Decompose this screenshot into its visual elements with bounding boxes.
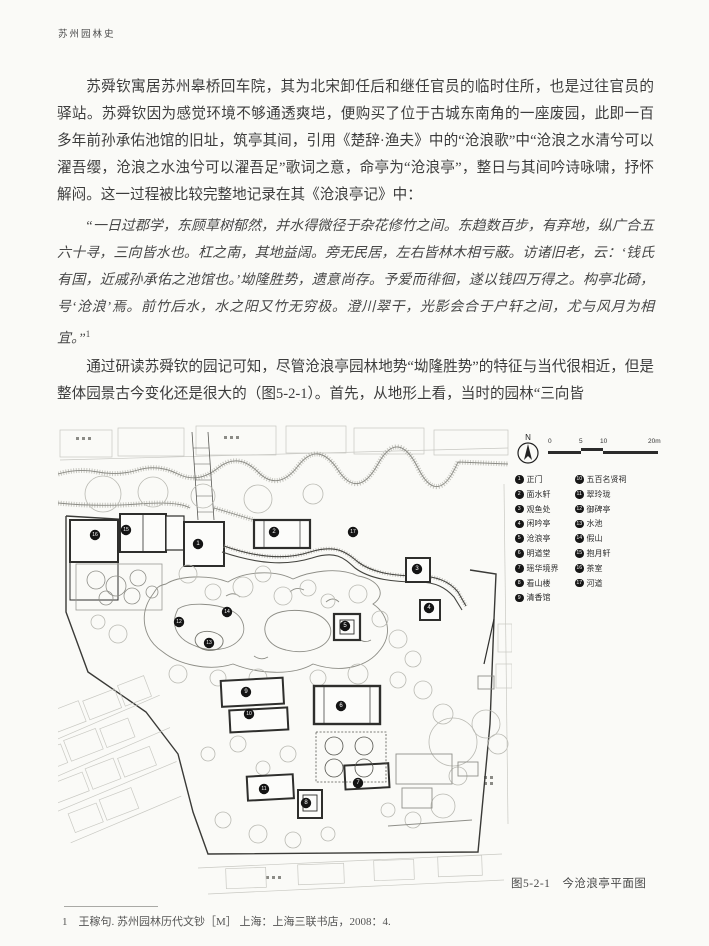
legend-column-2: 10五百名贤祠11翠玲珑12御碑亭13水池14假山15抱月轩16茶室17河道 bbox=[575, 474, 667, 607]
legend-item-label: 茶室 bbox=[587, 563, 603, 574]
legend-item-number: 6 bbox=[515, 549, 524, 558]
svg-text:17: 17 bbox=[350, 529, 356, 535]
legend-item-number: 5 bbox=[515, 534, 524, 543]
legend-item-number: 1 bbox=[515, 475, 524, 484]
map-marker: 12 bbox=[174, 617, 184, 627]
legend-item: 5沧浪亭 bbox=[515, 533, 575, 544]
legend-item: 11翠玲珑 bbox=[575, 489, 667, 500]
svg-text:13: 13 bbox=[206, 640, 212, 646]
legend-item-label: 清香馆 bbox=[527, 592, 551, 603]
footnote-reference: 1 bbox=[86, 329, 91, 339]
svg-text:16: 16 bbox=[92, 532, 98, 538]
map-marker: 9 bbox=[241, 687, 251, 697]
quote-paragraph: “一日过郡学，东顾草树郁然，并水得微径于杂花修竹之间。东趋数百步，有弃地，纵广合… bbox=[57, 213, 654, 353]
map-marker: 15 bbox=[121, 525, 131, 535]
legend-item-number: 17 bbox=[575, 579, 584, 588]
legend-item-number: 10 bbox=[575, 475, 584, 484]
map-marker: 10 bbox=[244, 709, 254, 719]
svg-text:14: 14 bbox=[224, 609, 230, 615]
legend-item: 14假山 bbox=[575, 533, 667, 544]
legend-item: 13水池 bbox=[575, 518, 667, 529]
scale-tick-10: 10 bbox=[600, 438, 607, 445]
legend-item: 2面水轩 bbox=[515, 489, 575, 500]
legend-item: 7瑶华境界 bbox=[515, 563, 575, 574]
legend-item: 15抱月轩 bbox=[575, 548, 667, 559]
scale-bar-track bbox=[548, 447, 662, 455]
legend-item-number: 14 bbox=[575, 534, 584, 543]
legend-item-label: 正门 bbox=[527, 474, 543, 485]
legend-item: 12御碑亭 bbox=[575, 504, 667, 515]
map-legend: N 0 5 10 20m 1正门2面水轩3观鱼处4闲吟亭5沧浪亭6明道堂7瑶华境… bbox=[515, 432, 667, 607]
compass-north-label: N bbox=[525, 433, 531, 442]
legend-item-number: 16 bbox=[575, 564, 584, 573]
svg-text:15: 15 bbox=[123, 527, 129, 533]
legend-item-label: 瑶华境界 bbox=[527, 563, 559, 574]
map-structures-southeast bbox=[388, 676, 494, 826]
map-marker: 8 bbox=[301, 798, 311, 808]
paragraph-1: 苏舜钦寓居苏州皋桥回车院，其为北宋卸任后和继任官员的临时住所，也是过往官员的驿站… bbox=[57, 74, 654, 209]
legend-header: N 0 5 10 20m bbox=[515, 432, 667, 470]
legend-item-label: 假山 bbox=[587, 533, 603, 544]
legend-item-number: 9 bbox=[515, 594, 524, 603]
map-marker: 11 bbox=[259, 784, 269, 794]
legend-item: 17河道 bbox=[575, 578, 667, 589]
legend-item-number: 4 bbox=[515, 520, 524, 529]
map-marker: 17 bbox=[348, 527, 358, 537]
figure-caption: 图5-2-1 今沧浪亭平面图 bbox=[511, 875, 646, 891]
scale-tick-20: 20m bbox=[648, 438, 661, 445]
map-buildings-northwest bbox=[70, 514, 224, 600]
legend-item-label: 河道 bbox=[587, 578, 603, 589]
legend-item: 16茶室 bbox=[575, 563, 667, 574]
legend-item-number: 13 bbox=[575, 520, 584, 529]
svg-text:10: 10 bbox=[246, 711, 252, 717]
map-marker: 2 bbox=[269, 527, 279, 537]
legend-item-number: 3 bbox=[515, 505, 524, 514]
scale-ticks: 0 5 10 20m bbox=[548, 438, 662, 447]
map-street-blocks-bottom bbox=[198, 854, 504, 894]
legend-item-number: 12 bbox=[575, 505, 584, 514]
map-courtyard-northwest bbox=[76, 564, 162, 610]
paragraph-2: 通过研读苏舜钦的园记可知，尽管沧浪亭园林地势“坳隆胜势”的特征与当代很相近，但是… bbox=[57, 354, 654, 408]
garden-plan-map: 1234567891011121314151617 bbox=[58, 424, 512, 906]
legend-item-label: 沧浪亭 bbox=[527, 533, 551, 544]
legend-item-label: 看山楼 bbox=[527, 578, 551, 589]
scale-bar: 0 5 10 20m bbox=[548, 438, 662, 460]
legend-item-number: 2 bbox=[515, 490, 524, 499]
quote-text: “一日过郡学，东顾草树郁然，并水得微径于杂花修竹之间。东趋数百步，有弃地，纵广合… bbox=[57, 219, 654, 347]
legend-item: 4闲吟亭 bbox=[515, 518, 575, 529]
legend-item: 6明道堂 bbox=[515, 548, 575, 559]
map-street-blocks-east bbox=[496, 484, 512, 824]
map-pavilions-east bbox=[406, 558, 494, 664]
footnote-divider bbox=[64, 906, 158, 907]
map-marker: 7 bbox=[353, 778, 363, 788]
legend-items: 1正门2面水轩3观鱼处4闲吟亭5沧浪亭6明道堂7瑶华境界8看山楼9清香馆 10五… bbox=[515, 474, 667, 607]
legend-item-label: 明道堂 bbox=[527, 548, 551, 559]
legend-item-label: 水池 bbox=[587, 518, 603, 529]
compass-icon: N bbox=[515, 432, 545, 468]
map-marker: 13 bbox=[204, 638, 214, 648]
footnote: 1 王稼句. 苏州园林历代文钞［M］ 上海：上海三联书店，2008：4. bbox=[62, 913, 622, 929]
scale-tick-0: 0 bbox=[548, 438, 552, 445]
legend-item: 10五百名贤祠 bbox=[575, 474, 667, 485]
map-marker: 3 bbox=[412, 564, 422, 574]
legend-item: 3观鱼处 bbox=[515, 504, 575, 515]
legend-item-label: 观鱼处 bbox=[527, 504, 551, 515]
legend-item: 1正门 bbox=[515, 474, 575, 485]
legend-item-number: 11 bbox=[575, 490, 584, 499]
map-street-blocks-north bbox=[60, 426, 508, 460]
scale-tick-5: 5 bbox=[579, 438, 583, 445]
map-marker: 4 bbox=[424, 603, 434, 613]
legend-item-number: 7 bbox=[515, 564, 524, 573]
map-marker: 5 bbox=[340, 621, 350, 631]
map-marker: 6 bbox=[336, 701, 346, 711]
svg-text:12: 12 bbox=[176, 619, 182, 625]
legend-item-number: 15 bbox=[575, 549, 584, 558]
legend-item-label: 面水轩 bbox=[527, 489, 551, 500]
map-marker: 1 bbox=[193, 539, 203, 549]
map-mianshuixuan bbox=[254, 520, 310, 548]
legend-item-label: 闲吟亭 bbox=[527, 518, 551, 529]
map-marker: 16 bbox=[90, 530, 100, 540]
legend-column-1: 1正门2面水轩3观鱼处4闲吟亭5沧浪亭6明道堂7瑶华境界8看山楼9清香馆 bbox=[515, 474, 575, 607]
running-header: 苏州园林史 bbox=[58, 26, 116, 40]
legend-item-number: 8 bbox=[515, 579, 524, 588]
legend-item-label: 五百名贤祠 bbox=[587, 474, 627, 485]
legend-item: 9清香馆 bbox=[515, 592, 575, 603]
legend-item-label: 翠玲珑 bbox=[587, 489, 611, 500]
legend-item-label: 御碑亭 bbox=[587, 504, 611, 515]
legend-item-label: 抱月轩 bbox=[587, 548, 611, 559]
map-marker: 14 bbox=[222, 607, 232, 617]
svg-text:11: 11 bbox=[261, 786, 266, 792]
legend-item: 8看山楼 bbox=[515, 578, 575, 589]
